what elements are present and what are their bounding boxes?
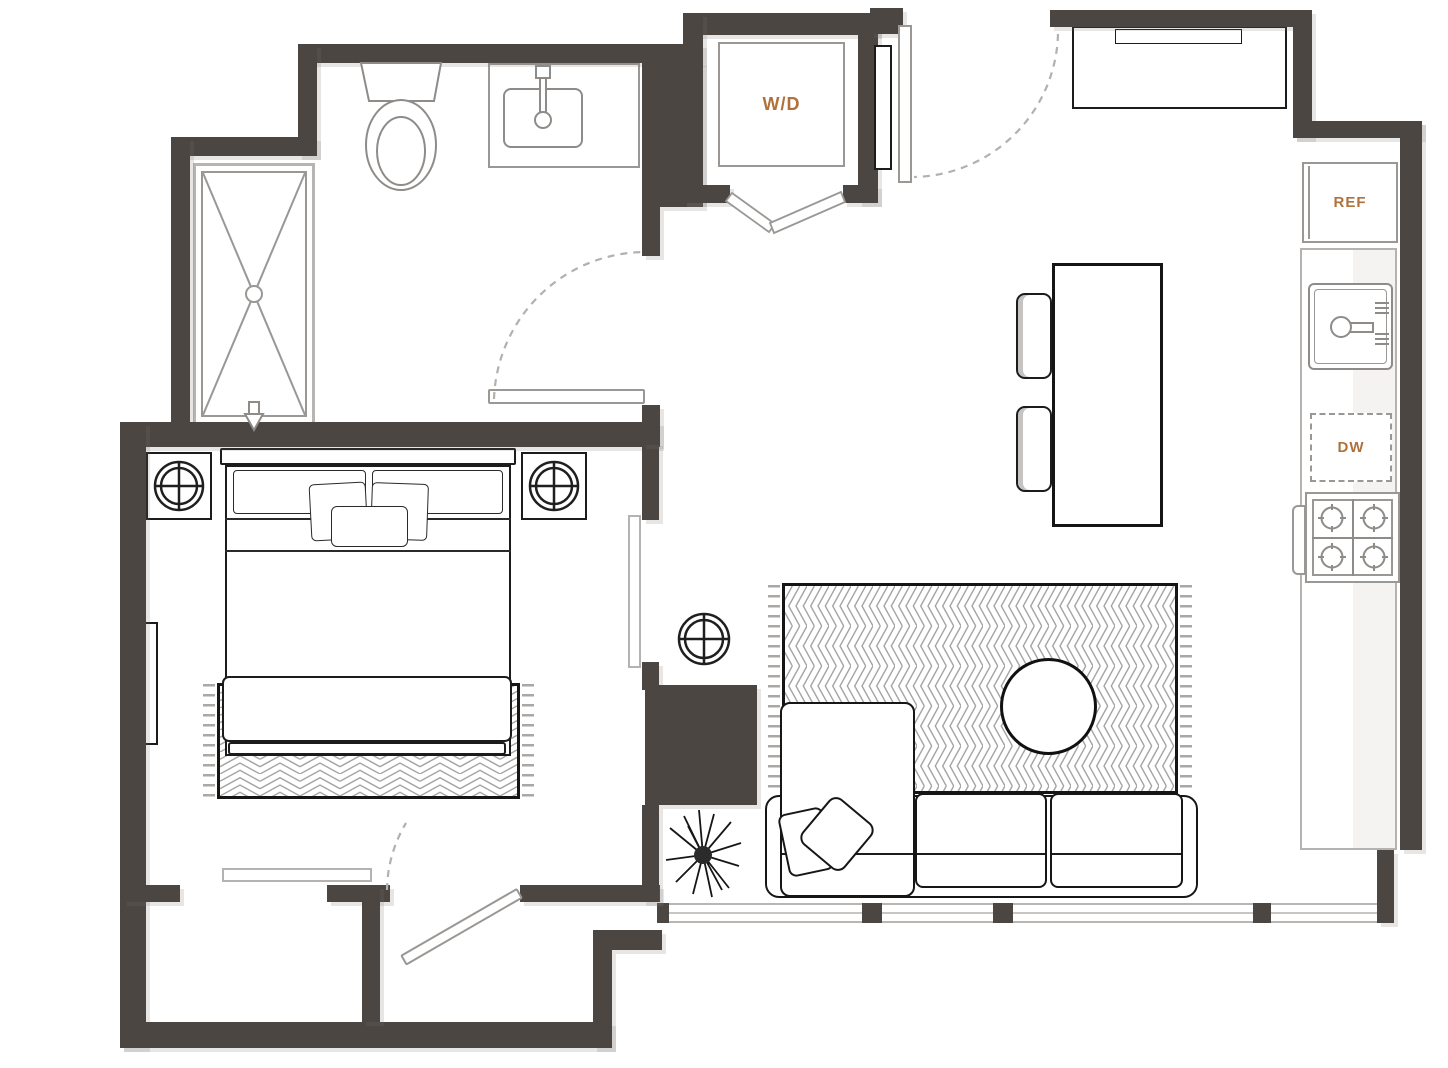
entry-side-panel (874, 45, 892, 170)
refrigerator-label: REF (1302, 162, 1398, 243)
wall-segment (298, 44, 703, 63)
wall-segment (1293, 10, 1312, 138)
wall-segment (327, 885, 390, 902)
sofa-cushion (915, 793, 1047, 888)
plant (666, 810, 741, 897)
toilet (361, 63, 441, 190)
entry-door-leaf (898, 25, 912, 183)
cushion-seat-line (917, 853, 1045, 855)
window-mullion (862, 903, 882, 923)
wall-exterior-left (120, 422, 146, 1048)
wall-segment (171, 137, 317, 156)
shower-pan (201, 171, 307, 417)
nightstand-left (146, 452, 212, 520)
window-mullion (993, 903, 1013, 923)
structural-column (645, 685, 757, 805)
kitchen-island (1052, 263, 1163, 527)
bedroom-rug-fringe-right (522, 684, 534, 798)
closet-divider-wall (362, 885, 380, 1022)
kitchen-sink-basin (1314, 289, 1387, 364)
stove-handle (1292, 505, 1306, 575)
wall-segment (683, 185, 730, 203)
closet-sliding-door-panel (222, 868, 372, 882)
wall-segment (120, 422, 660, 447)
wall-segment (1377, 850, 1394, 923)
island-stool (1016, 406, 1052, 492)
wall-exterior-bottom (120, 1022, 612, 1048)
wall-exterior-right (1400, 121, 1422, 850)
console-drawer (1115, 29, 1242, 44)
wall-segment (683, 13, 703, 203)
living-rug-fringe-right (1180, 585, 1192, 792)
island-stool (1016, 293, 1052, 379)
floor-lamp-symbol (679, 614, 729, 664)
bathroom-sink (503, 88, 583, 148)
washer-dryer-label: W/D (718, 42, 845, 167)
living-rug-fringe-left (768, 585, 780, 792)
nightstand-right (521, 452, 587, 520)
wall-segment (642, 805, 659, 902)
floor-plan: W/D REF DW (0, 0, 1448, 1068)
sofa-cushion (1050, 793, 1183, 888)
window-mullion (1253, 903, 1271, 923)
wall-segment (520, 885, 660, 902)
bifold-doors (726, 192, 845, 233)
wall-segment (642, 405, 660, 445)
wall-segment (171, 137, 190, 426)
wall-segment (642, 62, 660, 256)
wall-segment (642, 442, 659, 520)
wall-segment (843, 185, 878, 203)
foot-bench (222, 676, 512, 742)
wall-segment (593, 930, 612, 1048)
window-mullion (657, 903, 669, 923)
bedroom-sliding-door-panel (628, 515, 641, 668)
bedroom-rug-fringe-left (203, 684, 215, 798)
bathroom-door-leaf (488, 389, 645, 404)
wall-segment (683, 13, 878, 35)
stove-cooktop (1312, 499, 1393, 576)
wall-segment (123, 885, 180, 902)
foot-bench-edge (228, 742, 506, 755)
bed-headboard (220, 448, 516, 465)
bedroom-door-leaf (400, 888, 523, 966)
lumbar-pillow (331, 506, 408, 547)
bed-fold-line (225, 550, 511, 552)
cushion-seat-line (1052, 853, 1181, 855)
dishwasher-label: DW (1310, 413, 1392, 482)
wall-segment (1050, 10, 1302, 27)
wall-segment (612, 930, 662, 950)
coffee-table (1000, 658, 1097, 755)
